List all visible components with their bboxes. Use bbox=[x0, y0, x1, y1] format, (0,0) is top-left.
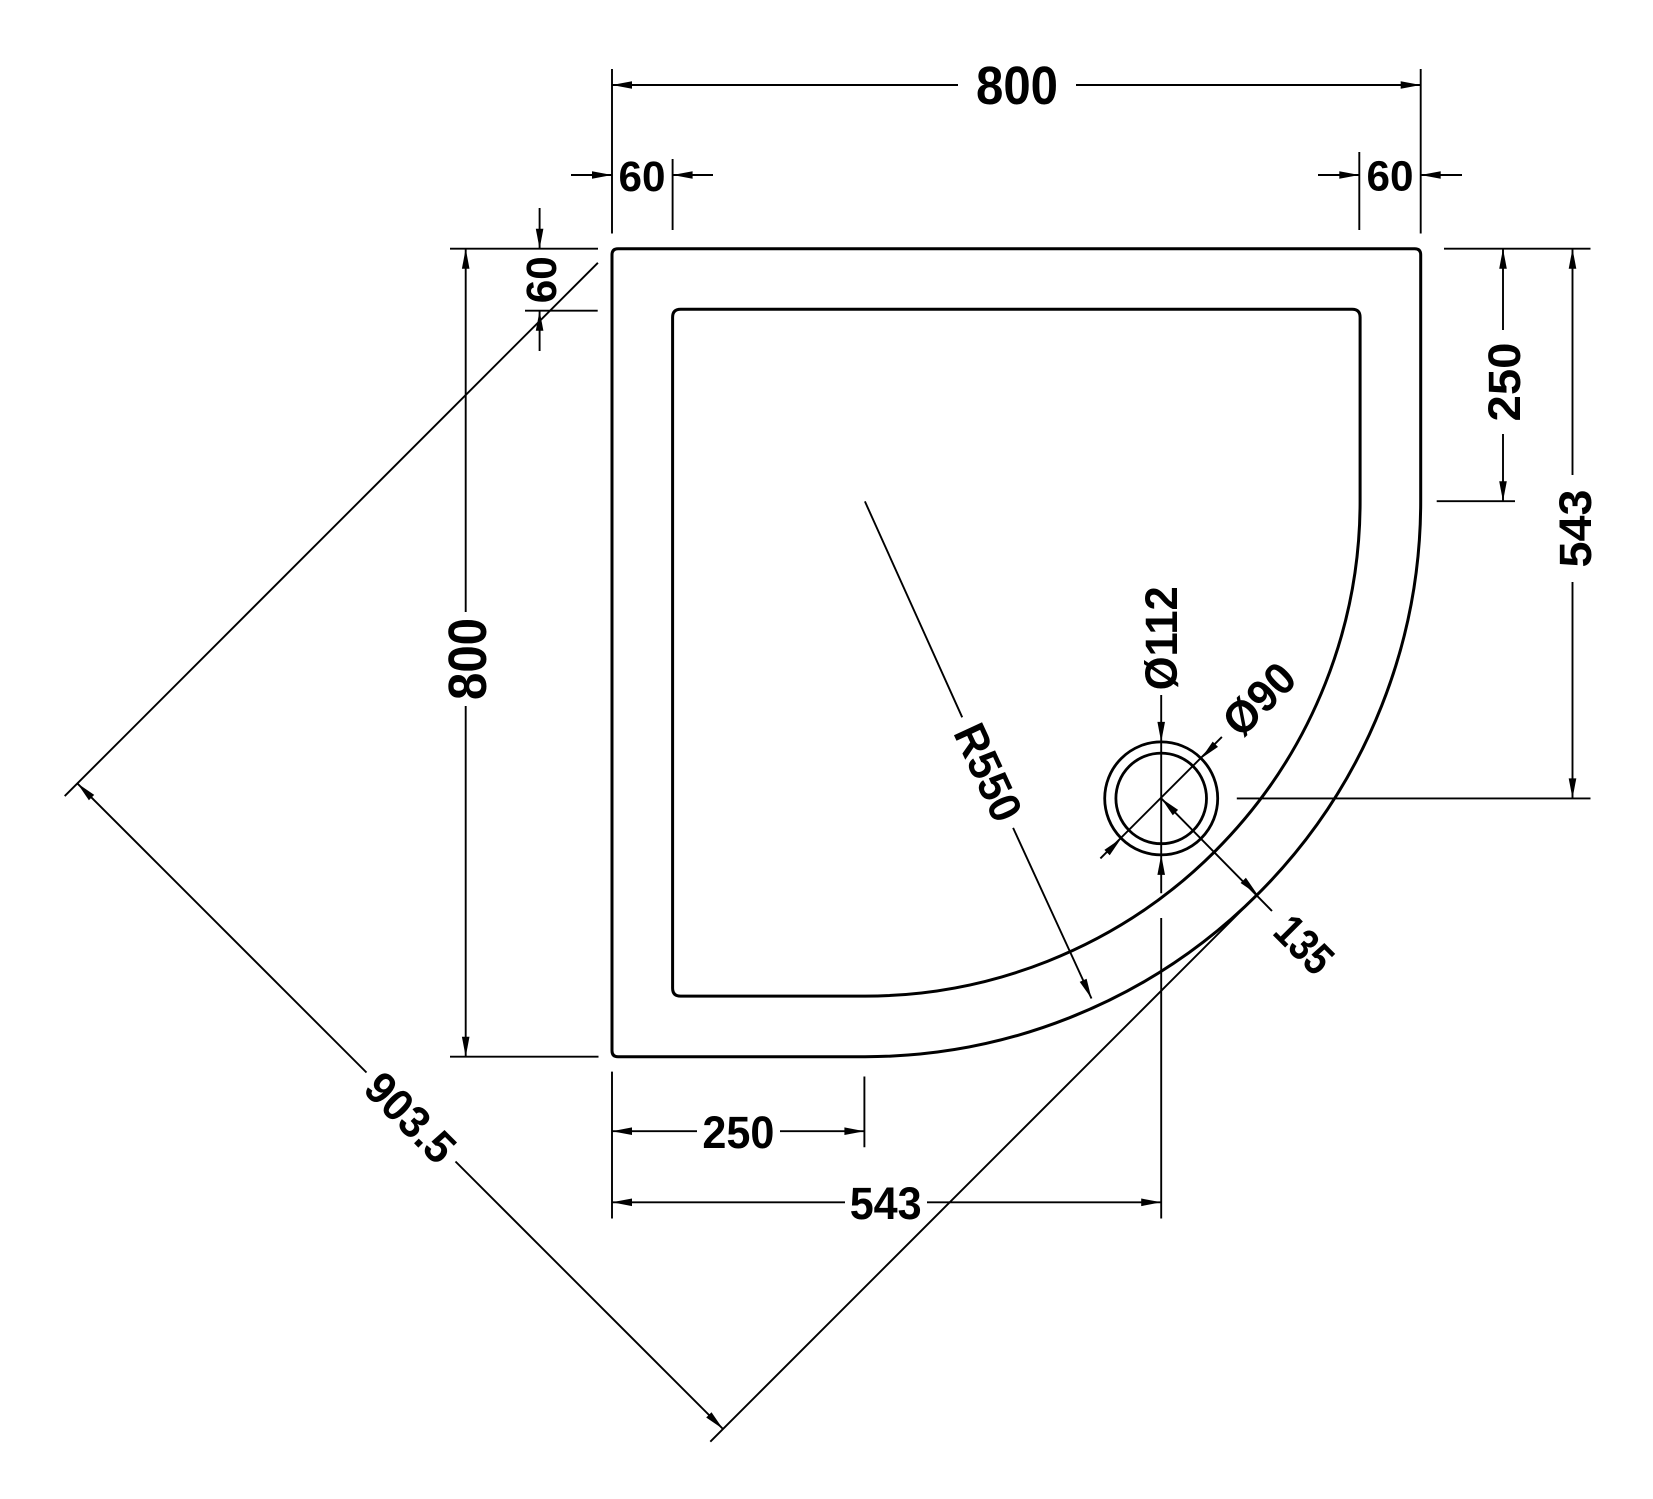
svg-text:Ø112: Ø112 bbox=[1136, 586, 1187, 690]
svg-text:800: 800 bbox=[976, 56, 1058, 116]
svg-text:60: 60 bbox=[518, 256, 566, 303]
svg-text:543: 543 bbox=[850, 1178, 922, 1229]
svg-text:60: 60 bbox=[619, 153, 666, 201]
svg-text:250: 250 bbox=[1479, 343, 1530, 422]
svg-text:543: 543 bbox=[1550, 490, 1601, 568]
svg-text:60: 60 bbox=[1367, 153, 1414, 201]
svg-text:800: 800 bbox=[438, 618, 498, 700]
svg-text:250: 250 bbox=[702, 1107, 774, 1158]
